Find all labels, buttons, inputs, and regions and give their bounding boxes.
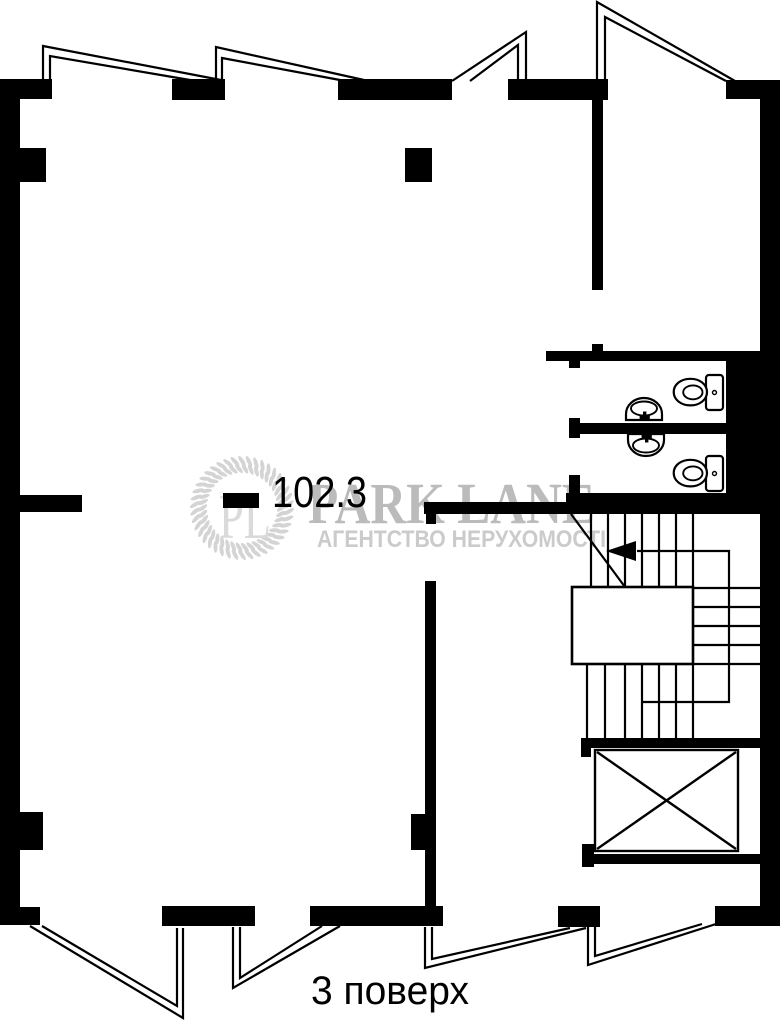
svg-text:102.3: 102.3 <box>272 468 367 517</box>
svg-text:3 поверх: 3 поверх <box>311 969 469 1013</box>
svg-text:АГЕНТСТВО НЕРУХОМОСТІ: АГЕНТСТВО НЕРУХОМОСТІ <box>317 526 606 553</box>
svg-text:PL: PL <box>219 481 271 552</box>
